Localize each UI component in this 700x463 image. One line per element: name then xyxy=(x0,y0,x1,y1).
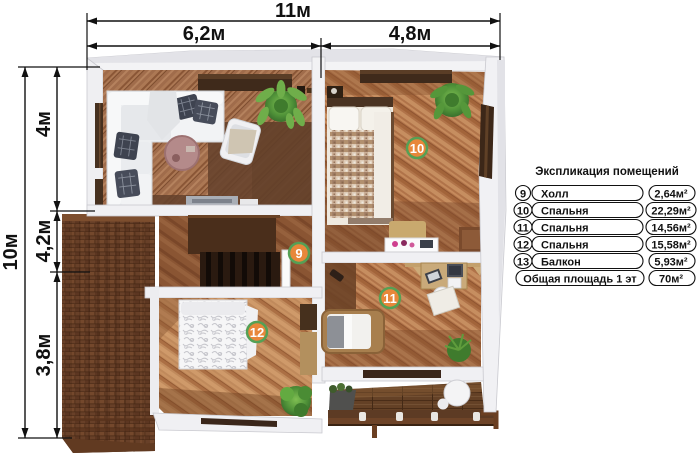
svg-text:Общая площадь 1 эт: Общая площадь 1 эт xyxy=(523,274,637,286)
svg-text:2,64м²: 2,64м² xyxy=(654,189,688,201)
svg-text:Спальня: Спальня xyxy=(541,240,589,252)
svg-text:14,56м²: 14,56м² xyxy=(651,223,691,235)
svg-text:Балкон: Балкон xyxy=(541,257,581,269)
svg-text:Спальня: Спальня xyxy=(541,206,589,218)
svg-text:13: 13 xyxy=(517,257,529,269)
svg-text:Холл: Холл xyxy=(541,189,569,201)
svg-text:11м: 11м xyxy=(275,0,311,22)
svg-text:9: 9 xyxy=(295,246,302,261)
svg-text:12: 12 xyxy=(517,240,529,252)
svg-text:6,2м: 6,2м xyxy=(183,23,226,45)
svg-text:4,8м: 4,8м xyxy=(389,23,432,45)
svg-text:9: 9 xyxy=(520,189,526,201)
svg-text:15,58м²: 15,58м² xyxy=(651,240,691,252)
svg-text:10м: 10м xyxy=(0,233,22,270)
svg-text:70м²: 70м² xyxy=(659,274,683,286)
svg-text:10: 10 xyxy=(517,206,529,218)
svg-text:11: 11 xyxy=(383,291,397,306)
svg-text:12: 12 xyxy=(250,325,264,340)
svg-text:22,29м²: 22,29м² xyxy=(651,206,691,218)
svg-text:3,8м: 3,8м xyxy=(33,334,55,377)
svg-text:4,2м: 4,2м xyxy=(33,220,55,263)
svg-text:Экспликация помещений: Экспликация помещений xyxy=(535,166,679,178)
svg-text:5,93м²: 5,93м² xyxy=(654,257,688,269)
svg-text:Спальня: Спальня xyxy=(541,223,589,235)
svg-text:10: 10 xyxy=(410,141,424,156)
svg-text:11: 11 xyxy=(517,223,529,235)
svg-text:4м: 4м xyxy=(33,111,55,137)
